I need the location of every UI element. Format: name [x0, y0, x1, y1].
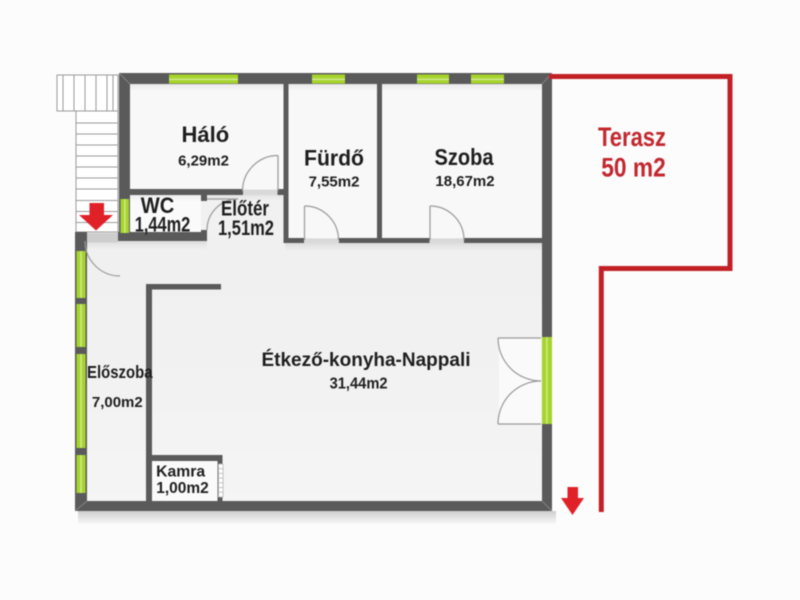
svg-text:Étkező-konyha-Nappali: Étkező-konyha-Nappali [261, 349, 470, 371]
svg-text:7,00m2: 7,00m2 [92, 394, 143, 411]
svg-text:Fürdő: Fürdő [304, 146, 364, 171]
svg-text:50 m2: 50 m2 [601, 153, 666, 183]
svg-text:7,55m2: 7,55m2 [309, 174, 360, 191]
svg-text:18,67m2: 18,67m2 [435, 173, 494, 190]
svg-text:Előszoba: Előszoba [87, 362, 153, 382]
svg-text:1,00m2: 1,00m2 [156, 480, 209, 497]
svg-text:Kamra: Kamra [156, 464, 205, 481]
svg-text:1,44m2: 1,44m2 [135, 214, 191, 237]
svg-text:Szoba: Szoba [435, 144, 494, 170]
svg-text:31,44m2: 31,44m2 [330, 376, 388, 393]
svg-text:1,51m2: 1,51m2 [218, 217, 274, 240]
svg-text:6,29m2: 6,29m2 [178, 153, 229, 170]
svg-text:Terasz: Terasz [598, 122, 666, 152]
svg-text:Háló: Háló [181, 122, 229, 147]
